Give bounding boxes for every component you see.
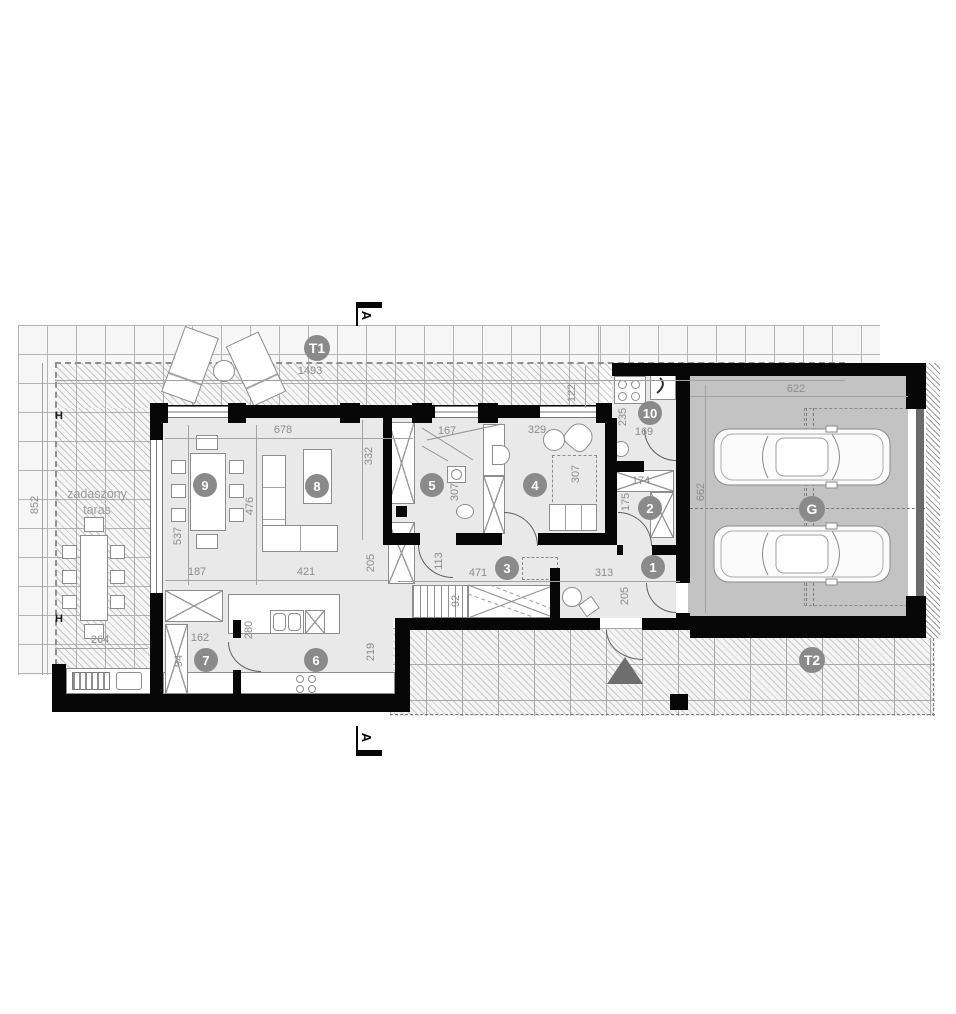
dimension-label-d11: 332 — [363, 447, 375, 465]
burner — [618, 380, 627, 389]
section-marker-stem-bottom — [356, 726, 358, 752]
burner — [631, 392, 640, 401]
room-badge-6: 6 — [304, 648, 328, 672]
t2-post — [670, 694, 688, 710]
washer-drum — [451, 469, 462, 480]
t2-dashed-right — [933, 628, 934, 716]
wall-column — [478, 403, 498, 423]
dimension-label-d7: 235 — [617, 408, 629, 426]
section-marker-bar-bottom — [356, 750, 382, 756]
window — [166, 406, 230, 418]
dimension-label-d1: 1493 — [298, 365, 322, 377]
dimension-label-d16: 174 — [632, 475, 650, 487]
desk-chair-icon — [492, 445, 510, 465]
sofa-cushion-line — [581, 505, 582, 530]
room-badge-9: 9 — [193, 473, 217, 497]
dimension-label-d17: 175 — [620, 493, 632, 511]
sofa-cushion-line — [300, 526, 301, 551]
dimension-label-d18: 187 — [188, 566, 206, 578]
dimension-label-d20: 205 — [365, 554, 377, 572]
chair — [62, 545, 77, 559]
chair — [171, 508, 186, 522]
dimension-label-d6: 329 — [528, 424, 546, 436]
outdoor-dining-table — [80, 535, 108, 621]
sofa-bed — [549, 504, 597, 531]
wall-house-garage — [676, 365, 690, 583]
wardrobe-cabinet — [483, 476, 505, 534]
wall-room7 — [233, 620, 241, 638]
dim-line — [55, 648, 148, 649]
dimension-label-d15: 307 — [570, 465, 582, 483]
room-badge-10: 10 — [638, 401, 662, 425]
section-marker-top: A — [359, 311, 374, 320]
dim-line — [55, 380, 845, 381]
dim-line — [362, 420, 363, 540]
room-badge-4: 4 — [523, 473, 547, 497]
closet-cabinet — [165, 590, 223, 622]
chair — [229, 460, 244, 474]
dimension-label-d25: 92 — [450, 595, 462, 607]
t2-dashed-bottom — [390, 714, 935, 715]
terrace-label-line1: zadaszony — [67, 487, 127, 501]
stairs-landing — [468, 585, 555, 618]
window — [435, 406, 478, 418]
wall-room2-bottom — [652, 545, 676, 555]
chair — [84, 517, 104, 532]
dimension-label-d23: 313 — [595, 567, 613, 579]
dimension-label-d2: 122 — [566, 384, 578, 402]
dishwasher-icon — [305, 610, 325, 634]
wall-living-room5 — [383, 418, 392, 535]
wall-jog — [395, 618, 410, 712]
window-terrace-door — [150, 440, 163, 593]
sofa-cushion-line — [565, 505, 566, 530]
dimension-label-d8: 169 — [635, 426, 653, 438]
wall-room4-east — [605, 418, 617, 533]
h-marker-top: H — [55, 410, 63, 422]
driveway-t2-grid — [390, 628, 935, 716]
dimension-label-d29: 280 — [243, 621, 255, 639]
grill-icon — [72, 672, 110, 690]
kitchen-counter — [163, 672, 395, 694]
dimension-label-d12: 537 — [172, 527, 184, 545]
chair — [171, 484, 186, 498]
wall-bottom-house — [52, 694, 410, 712]
room-badge-7: 7 — [194, 648, 218, 672]
section-marker-bar-top — [356, 302, 382, 308]
terrace-t1-grid-right — [600, 325, 880, 365]
sink-basin — [288, 613, 301, 631]
dimension-label-d26: 264 — [91, 634, 109, 646]
dimension-label-d19: 421 — [297, 566, 315, 578]
dim-line — [256, 425, 257, 585]
dim-line — [585, 366, 586, 408]
floor-plan-canvas: A A zadaszony taras H H 1493122852678167… — [0, 0, 956, 1014]
wall-bottom-garage — [690, 616, 938, 638]
dimension-label-d5: 167 — [438, 425, 456, 437]
wardrobe-cabinet — [388, 422, 415, 504]
wall-top-garage — [612, 363, 938, 376]
wall-house-garage — [676, 613, 690, 630]
dimension-label-d13: 476 — [244, 497, 256, 515]
dim-line — [188, 425, 189, 585]
dim-line — [398, 581, 680, 582]
chair — [229, 508, 244, 522]
dim-line — [165, 580, 390, 581]
chair — [110, 595, 125, 609]
wall-room10-bottom — [617, 461, 644, 472]
dimension-label-d14: 307 — [449, 483, 461, 501]
garage-door — [916, 409, 924, 596]
terrace-boundary-dashed-left — [55, 362, 57, 675]
burner — [296, 675, 304, 683]
burner — [296, 685, 304, 693]
room-badge-T2: T2 — [799, 647, 825, 673]
dimension-label-d28: 94 — [173, 655, 185, 667]
wall-rooms-corridor — [383, 533, 420, 545]
wall-room7 — [233, 670, 241, 694]
wall-column — [340, 403, 360, 423]
dim-line — [690, 396, 908, 397]
wardrobe-cabinet — [388, 522, 415, 584]
dim-line — [165, 438, 413, 439]
wall-hall-partition — [550, 568, 560, 618]
dimension-label-d30: 219 — [365, 643, 377, 661]
burner — [618, 392, 627, 401]
terrace-side-table — [213, 360, 235, 382]
toilet-icon — [456, 504, 474, 519]
chair — [62, 570, 77, 584]
chair — [196, 534, 218, 549]
garage-door-hatch — [926, 363, 940, 638]
burner — [308, 675, 316, 683]
dimension-label-d27: 162 — [191, 632, 209, 644]
section-marker-stem-top — [356, 302, 358, 326]
burner — [631, 380, 640, 389]
burner — [308, 685, 316, 693]
chair — [110, 545, 125, 559]
section-marker-bottom: A — [359, 733, 374, 742]
dimension-label-d4: 678 — [274, 424, 292, 436]
wall-left-house — [150, 405, 163, 440]
window — [540, 406, 598, 418]
wall-rooms-corridor — [456, 533, 502, 545]
room-badge-5: 5 — [420, 473, 444, 497]
dimension-label-d22: 471 — [469, 567, 487, 579]
h-marker-bottom: H — [55, 613, 63, 625]
chair — [229, 484, 244, 498]
sink-basin — [273, 613, 286, 631]
sofa-cushion-line — [263, 519, 285, 520]
outdoor-sink-icon — [116, 672, 142, 690]
sofa-cushion-line — [263, 487, 285, 488]
terrace-label: zadaszony taras — [67, 486, 127, 518]
room-badge-1: 1 — [641, 555, 665, 579]
room-badge-2: 2 — [638, 496, 662, 520]
armchair-icon — [543, 429, 565, 451]
wall-room2-bottom — [617, 545, 623, 555]
entrance-arrow — [607, 657, 643, 684]
dimension-label-d21: 113 — [433, 552, 445, 570]
room-badge-G: G — [799, 496, 825, 522]
room-badge-8: 8 — [305, 474, 329, 498]
chair — [62, 595, 77, 609]
dimension-label-d24: 205 — [619, 587, 631, 605]
dimension-label-d10: 662 — [695, 483, 707, 501]
wall-rooms-corridor — [538, 533, 617, 545]
chair — [171, 460, 186, 474]
dim-line — [42, 363, 43, 675]
room-badge-T1: T1 — [304, 335, 330, 361]
wall-bottom-hall — [410, 618, 600, 630]
cabinet-appliance-dot — [396, 506, 407, 517]
room-badge-3: 3 — [495, 556, 519, 580]
dimension-label-d9: 622 — [787, 383, 805, 395]
wall-column — [412, 403, 432, 423]
chair — [110, 570, 125, 584]
wall-column — [228, 403, 246, 423]
terrace-label-line2: taras — [83, 503, 111, 517]
dimension-label-d3: 852 — [29, 496, 41, 514]
